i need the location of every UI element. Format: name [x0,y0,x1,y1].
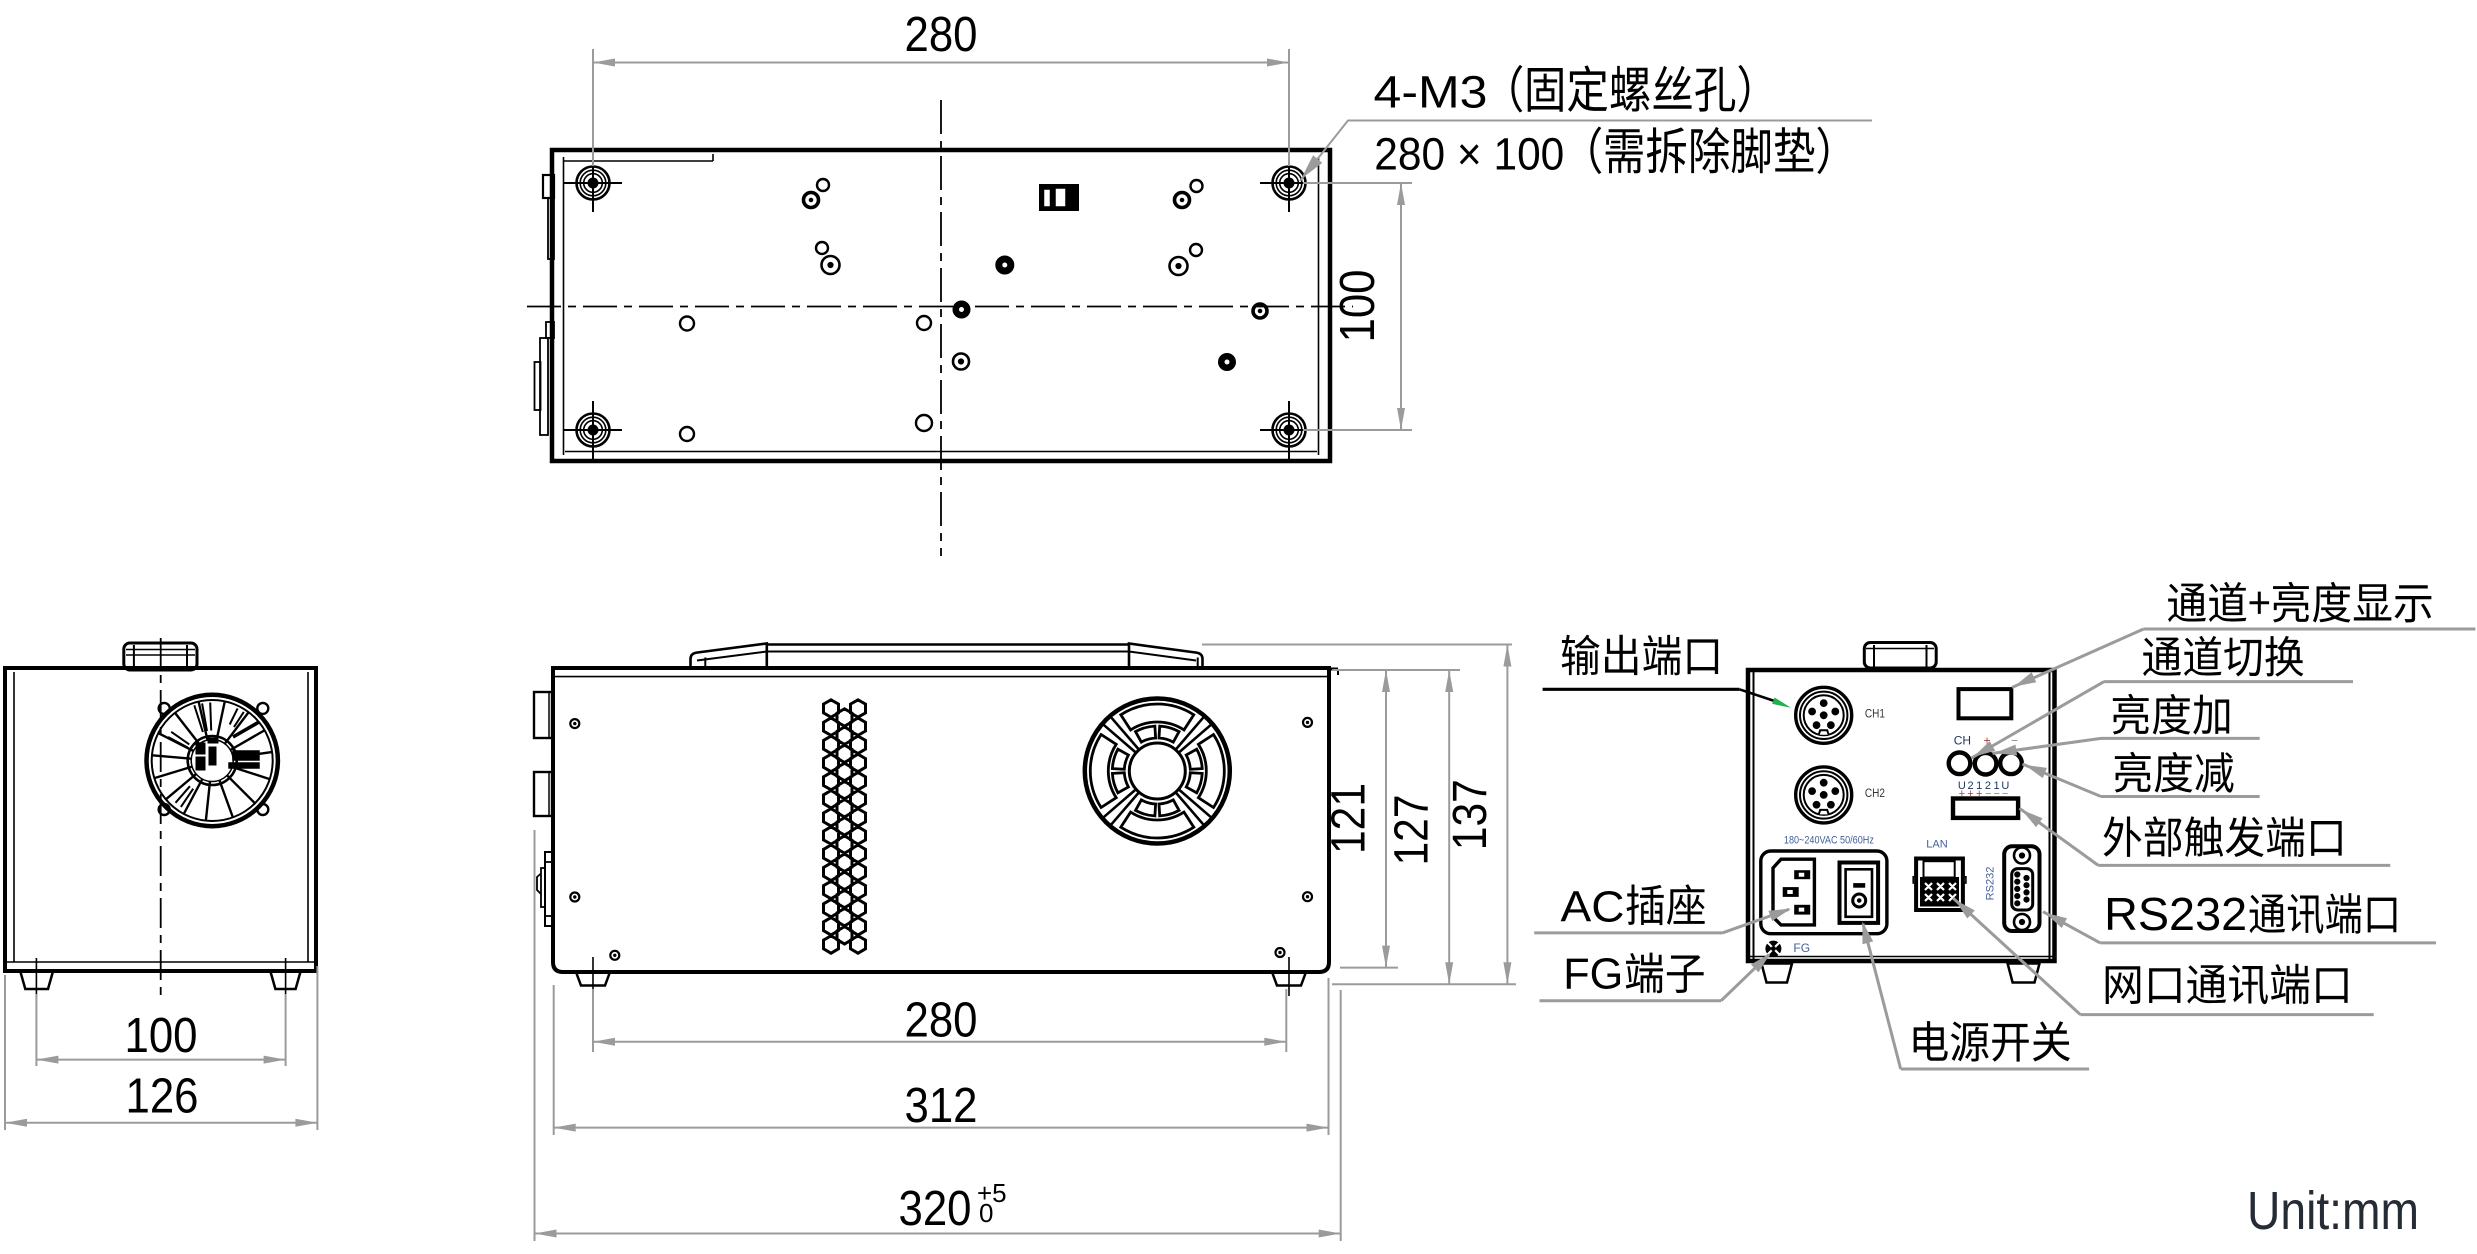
svg-text:Unit:mm: Unit:mm [2247,1181,2419,1241]
svg-text:RS232: RS232 [2104,888,2247,940]
svg-text:312: 312 [905,1079,978,1133]
svg-text:LAN: LAN [1926,839,1947,851]
svg-text:4-M3: 4-M3 [1374,67,1488,118]
svg-text:127: 127 [1386,795,1439,866]
svg-text:CH: CH [1954,734,1971,748]
svg-text:CH1: CH1 [1865,709,1885,721]
svg-text:121: 121 [1323,783,1376,854]
svg-text:320: 320 [899,1182,972,1236]
svg-text:280: 280 [905,8,978,62]
svg-text:CH2: CH2 [1865,788,1885,800]
svg-text:280: 280 [905,994,978,1048]
svg-text:FG: FG [1793,941,1810,955]
svg-text:0: 0 [979,1198,993,1228]
svg-text:137: 137 [1444,779,1497,850]
svg-text:AC: AC [1561,883,1625,932]
svg-text:RS232: RS232 [1984,867,1996,901]
svg-text:280 × 100: 280 × 100 [1374,128,1564,179]
svg-text:FG: FG [1563,950,1623,999]
svg-text:126: 126 [126,1070,199,1124]
svg-text:180~240VAC 50/60Hz: 180~240VAC 50/60Hz [1784,835,1874,847]
svg-text:100: 100 [125,1009,198,1063]
svg-text:100: 100 [1331,270,1385,343]
